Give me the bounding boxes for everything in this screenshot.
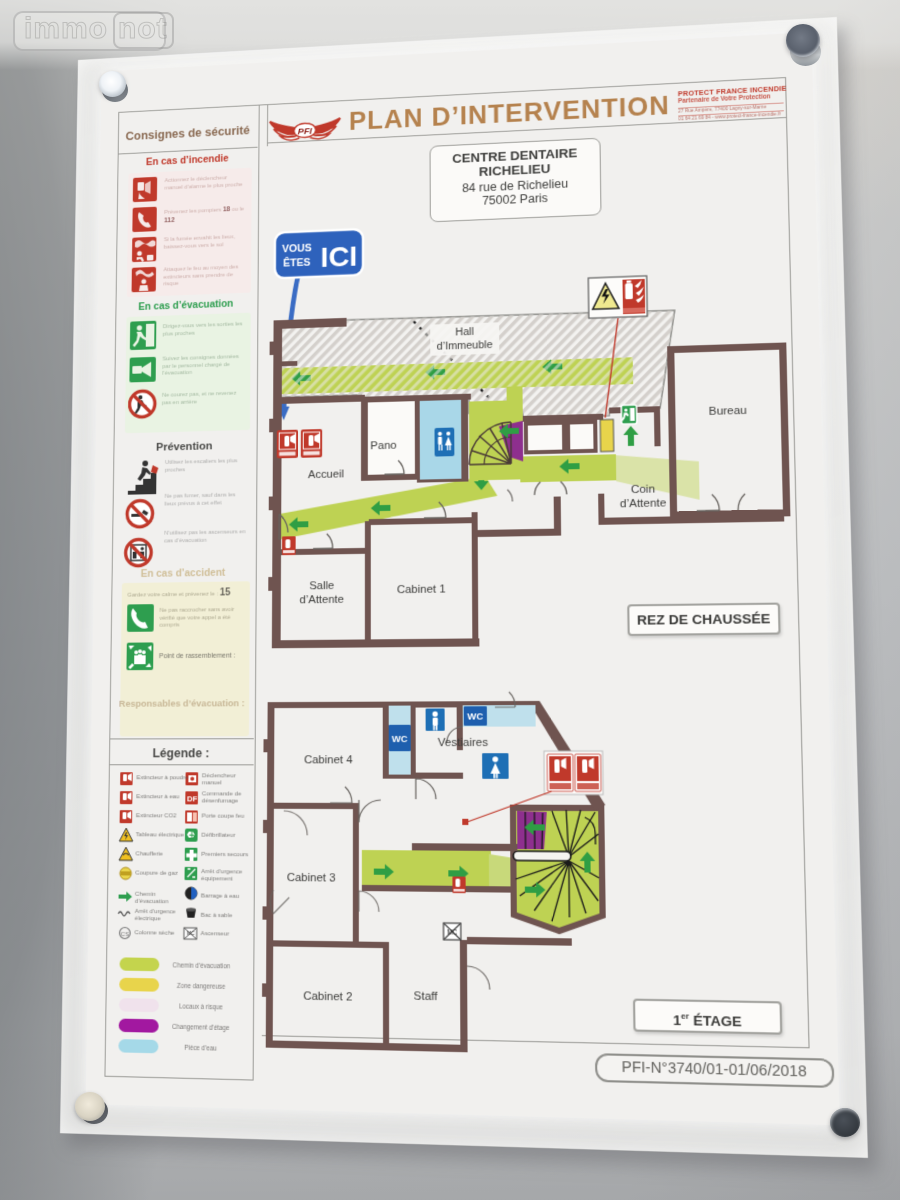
svg-text:CS: CS: [121, 932, 130, 939]
svg-text:VOUS: VOUS: [282, 243, 312, 256]
svg-text:WC: WC: [467, 711, 483, 722]
svg-text:ICI: ICI: [321, 239, 358, 273]
svg-text:Pano: Pano: [370, 440, 396, 453]
svg-text:Cabinet 4: Cabinet 4: [304, 754, 353, 766]
svg-text:Coin: Coin: [631, 484, 656, 497]
svg-text:Cabinet 1: Cabinet 1: [397, 584, 446, 597]
svg-text:Hall: Hall: [455, 326, 474, 338]
svg-text:MC: MC: [447, 930, 458, 937]
svg-text:ÊTES: ÊTES: [283, 255, 311, 270]
svg-text:d’Attente: d’Attente: [620, 498, 667, 511]
svg-text:WC: WC: [392, 733, 408, 744]
svg-text:Staff: Staff: [414, 990, 438, 1003]
svg-text:Salle: Salle: [309, 580, 334, 592]
svg-text:Cabinet 2: Cabinet 2: [303, 991, 352, 1005]
svg-text:MC: MC: [187, 931, 195, 937]
svg-text:d’Immeuble: d’Immeuble: [437, 339, 494, 353]
svg-text:Vestiaires: Vestiaires: [438, 737, 488, 749]
svg-text:Cabinet 3: Cabinet 3: [287, 872, 336, 885]
svg-text:DF: DF: [187, 794, 198, 804]
svg-text:PFI: PFI: [298, 125, 313, 136]
svg-text:d’Attente: d’Attente: [300, 594, 345, 607]
svg-text:Accueil: Accueil: [308, 469, 344, 482]
svg-text:Bureau: Bureau: [709, 405, 748, 418]
